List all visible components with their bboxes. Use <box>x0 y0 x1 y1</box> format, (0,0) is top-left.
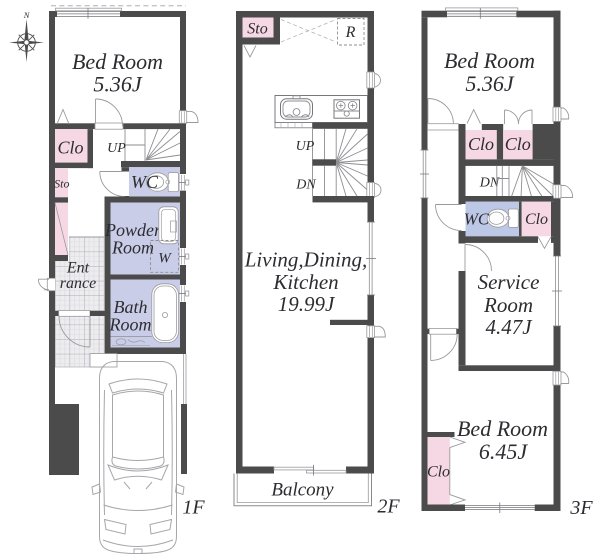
svg-text:Clo: Clo <box>427 463 450 480</box>
svg-text:Bed Room: Bed Room <box>444 48 535 73</box>
svg-text:Clo: Clo <box>525 211 548 228</box>
svg-text:DN: DN <box>295 177 316 192</box>
svg-text:Room: Room <box>483 293 533 317</box>
svg-text:19.99J: 19.99J <box>278 292 336 316</box>
svg-text:Ent: Ent <box>66 260 90 277</box>
svg-text:Living,Dining,: Living,Dining, <box>244 248 368 272</box>
svg-text:5.36J: 5.36J <box>465 71 515 96</box>
svg-text:1F: 1F <box>182 497 205 519</box>
svg-text:WC: WC <box>131 172 159 192</box>
svg-text:Clo: Clo <box>468 134 494 154</box>
svg-text:Kitchen: Kitchen <box>272 270 338 294</box>
svg-text:UP: UP <box>107 141 126 156</box>
svg-text:Bed Room: Bed Room <box>457 416 548 441</box>
svg-text:3F: 3F <box>569 497 593 519</box>
svg-text:Bed Room: Bed Room <box>72 49 163 74</box>
svg-text:R: R <box>345 24 356 41</box>
svg-text:Sto: Sto <box>54 177 69 191</box>
svg-text:Clo: Clo <box>505 134 531 154</box>
svg-text:rance: rance <box>60 275 96 292</box>
svg-text:Room: Room <box>111 238 154 258</box>
svg-text:W: W <box>158 250 172 266</box>
svg-text:Sto: Sto <box>247 21 267 38</box>
svg-text:6.45J: 6.45J <box>479 439 529 464</box>
svg-text:UP: UP <box>296 139 315 154</box>
svg-text:5.36J: 5.36J <box>93 72 143 97</box>
svg-text:Service: Service <box>478 270 540 294</box>
svg-text:Balcony: Balcony <box>271 480 334 501</box>
svg-text:Room: Room <box>109 315 152 335</box>
svg-text:Clo: Clo <box>57 138 83 158</box>
svg-text:2F: 2F <box>377 495 400 517</box>
svg-text:WC: WC <box>464 209 490 228</box>
svg-text:4.47J: 4.47J <box>485 315 533 339</box>
